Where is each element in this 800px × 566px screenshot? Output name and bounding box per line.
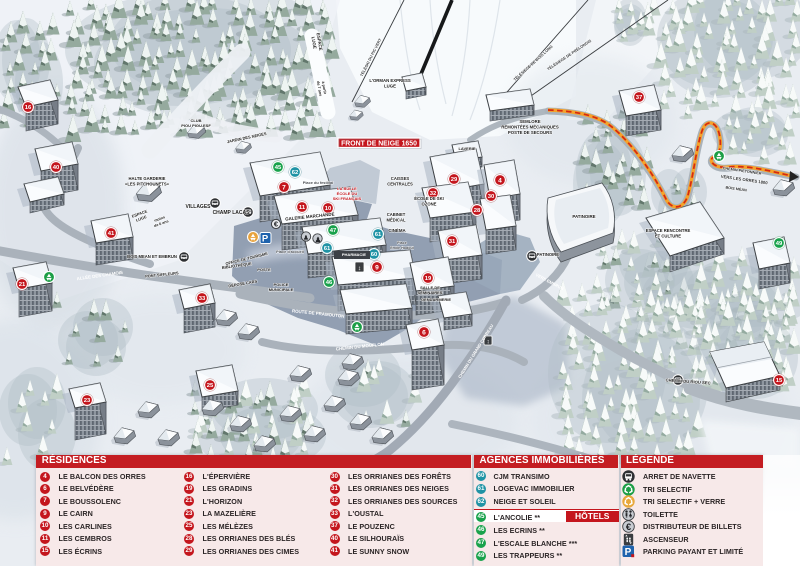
svg-text:Place d'accueil: Place d'accueil — [276, 249, 304, 254]
svg-text:61: 61 — [375, 232, 382, 238]
svg-text:Emile Hodoul: Emile Hodoul — [390, 246, 414, 250]
svg-text:↕: ↕ — [487, 340, 490, 346]
svg-text:CENTRALES: CENTRALES — [387, 181, 413, 186]
svg-text:4: 4 — [498, 177, 502, 184]
svg-text:28: 28 — [474, 208, 481, 214]
svg-text:Place: Place — [397, 241, 407, 245]
svg-text:29: 29 — [451, 177, 458, 183]
svg-text:MUNICIPALE: MUNICIPALE — [269, 287, 294, 292]
svg-text:31: 31 — [449, 239, 456, 245]
svg-text:SEMLORE: SEMLORE — [519, 119, 540, 124]
svg-text:CAISSES: CAISSES — [391, 176, 410, 181]
svg-text:9: 9 — [375, 264, 379, 271]
svg-text:6: 6 — [422, 329, 426, 336]
svg-text:VILLAGES: VILLAGES — [185, 204, 211, 210]
svg-text:L'ORMAN EXPRESS: L'ORMAN EXPRESS — [369, 78, 411, 83]
svg-text:ÉCOLE DE SKI: ÉCOLE DE SKI — [414, 196, 444, 201]
svg-text:25: 25 — [207, 383, 214, 389]
svg-text:♟: ♟ — [315, 236, 321, 244]
svg-text:CABINET: CABINET — [387, 212, 406, 217]
svg-text:PHARMACIE: PHARMACIE — [342, 252, 367, 257]
svg-text:P: P — [624, 547, 631, 558]
svg-text:15: 15 — [776, 378, 783, 384]
svg-text:7: 7 — [282, 184, 286, 191]
svg-text:19: 19 — [425, 276, 432, 282]
svg-text:40: 40 — [53, 165, 60, 171]
svg-text:46: 46 — [326, 280, 333, 286]
svg-text:♟: ♟ — [303, 235, 309, 242]
svg-text:ET CULTURE: ET CULTURE — [655, 233, 681, 238]
svg-text:21: 21 — [19, 282, 26, 288]
svg-text:GENDARMERIE: GENDARMERIE — [421, 297, 451, 302]
svg-text:11: 11 — [299, 205, 306, 211]
svg-text:61: 61 — [324, 246, 331, 252]
svg-text:OZONE: OZONE — [422, 201, 437, 206]
svg-text:41: 41 — [108, 231, 115, 237]
svg-text:33: 33 — [199, 296, 206, 302]
svg-text:PATINOIRE: PATINOIRE — [537, 252, 559, 257]
svg-text:€: € — [625, 522, 631, 533]
svg-text:CINÉMA: CINÉMA — [388, 228, 406, 233]
svg-text:47: 47 — [330, 228, 337, 234]
svg-text:PATINOIRE: PATINOIRE — [572, 214, 595, 219]
svg-text:LAVERIE: LAVERIE — [458, 146, 475, 151]
svg-text:PIOU PIOU ESF: PIOU PIOU ESF — [181, 123, 211, 128]
svg-text:P: P — [262, 233, 269, 244]
svg-text:45: 45 — [275, 165, 282, 171]
svg-text:16: 16 — [25, 105, 32, 111]
svg-text:23: 23 — [84, 398, 91, 404]
svg-text:CHAMP LACAS: CHAMP LACAS — [213, 210, 251, 216]
svg-text:FRONT DE NEIGE 1650: FRONT DE NEIGE 1650 — [341, 140, 417, 147]
svg-text:Place du festival: Place du festival — [303, 180, 334, 185]
svg-text:SKI FRANÇAIS: SKI FRANÇAIS — [333, 196, 362, 201]
svg-text:LUGE: LUGE — [384, 83, 396, 88]
svg-text:POSTE DE SECOURS: POSTE DE SECOURS — [508, 130, 552, 135]
svg-text:49: 49 — [776, 241, 783, 247]
svg-text:«LES PITCHOUNETS»: «LES PITCHOUNETS» — [125, 181, 170, 186]
svg-text:60: 60 — [371, 252, 378, 258]
svg-text:MÉDICAL: MÉDICAL — [386, 217, 406, 222]
svg-text:30: 30 — [488, 194, 495, 200]
svg-text:POSTE: POSTE — [257, 267, 271, 272]
svg-text:62: 62 — [292, 170, 299, 176]
svg-text:SÉMINAIRES: SÉMINAIRES — [418, 290, 443, 295]
svg-text:↕: ↕ — [358, 265, 361, 272]
svg-text:REMONTÉES MÉCANIQUES: REMONTÉES MÉCANIQUES — [501, 124, 559, 129]
svg-text:BOIS MEAN ET EMBRUN: BOIS MEAN ET EMBRUN — [127, 254, 177, 259]
svg-text:ESPACE RENCONTRE: ESPACE RENCONTRE — [646, 228, 691, 233]
svg-text:37: 37 — [636, 95, 643, 101]
svg-text:HALTE GARDERIE: HALTE GARDERIE — [129, 176, 166, 181]
